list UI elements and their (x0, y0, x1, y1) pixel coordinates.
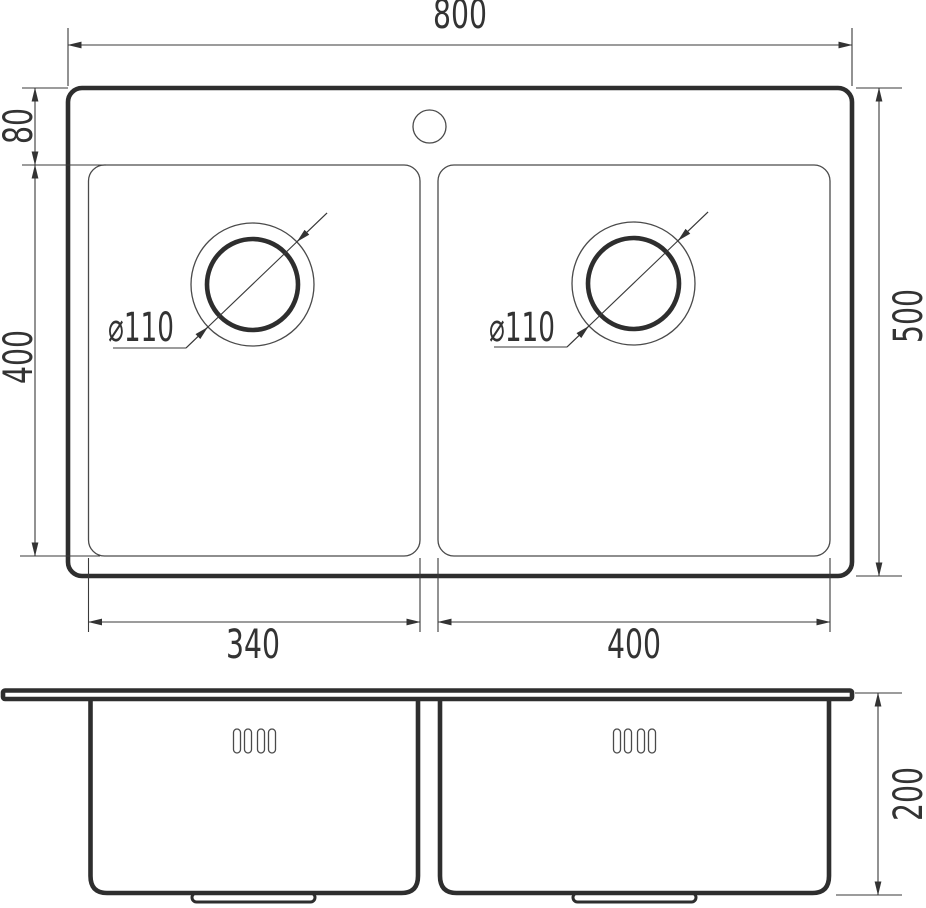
rim-top-offset-label: 80 (0, 108, 42, 144)
overflow-slot (649, 729, 656, 753)
overflow-slot (625, 729, 632, 753)
overflow-slot (614, 729, 621, 753)
dim-bowl-depth: 400 (0, 165, 100, 556)
leader-arrow (567, 326, 589, 347)
right-bowl-section (440, 699, 829, 893)
drawing-svg: ⌀110 ⌀110 800 500 80 (0, 0, 926, 908)
left-drain-fitting (192, 893, 315, 902)
bowl-depth-label: 400 (0, 330, 42, 384)
front-view: 200 (3, 691, 926, 903)
dim-overall-depth: 500 (856, 88, 926, 576)
right-overflow-slots (614, 729, 656, 753)
rim-flange (3, 691, 852, 700)
left-bowl-width-label: 340 (226, 622, 280, 668)
overflow-slot (245, 729, 252, 753)
overflow-slot (234, 729, 241, 753)
overflow-slot (258, 729, 265, 753)
right-bowl-outline (438, 165, 830, 556)
sink-technical-drawing: ⌀110 ⌀110 800 500 80 (0, 0, 926, 908)
left-drain-diameter-label: ⌀110 (108, 305, 174, 351)
right-bowl-width-label: 400 (607, 622, 661, 668)
overflow-slot (269, 729, 276, 753)
leader-arrow (297, 213, 327, 242)
leader-arrow (678, 212, 708, 241)
top-view: ⌀110 ⌀110 800 500 80 (0, 0, 926, 668)
dim-overall-width: 800 (68, 0, 852, 86)
overall-depth-label: 500 (886, 289, 926, 343)
dim-rim-top-offset: 80 (0, 88, 106, 165)
dim-side-height: 200 (836, 693, 926, 895)
left-overflow-slots (234, 729, 276, 753)
left-bowl-section (91, 699, 419, 893)
overflow-slot (638, 729, 645, 753)
right-drain-diameter-label: ⌀110 (489, 305, 555, 351)
overall-width-label: 800 (433, 0, 487, 38)
sink-outline (68, 88, 852, 576)
leader-arrow (186, 327, 208, 348)
side-height-label: 200 (886, 767, 926, 821)
right-drain-fitting (573, 893, 696, 902)
faucet-hole (413, 110, 446, 143)
